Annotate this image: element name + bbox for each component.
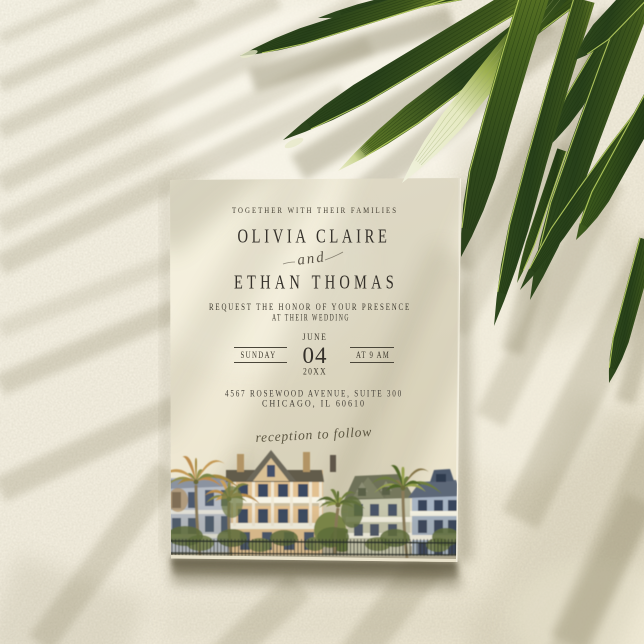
svg-text:TOGETHER WITH THEIR FAMILIES: TOGETHER WITH THEIR FAMILIES	[232, 205, 398, 215]
svg-text:20XX: 20XX	[303, 367, 327, 377]
svg-text:REQUEST THE HONOR OF YOUR PRES: REQUEST THE HONOR OF YOUR PRESENCE	[209, 302, 411, 312]
svg-text:OLIVIA CLAIRE: OLIVIA CLAIRE	[238, 226, 391, 248]
svg-text:SUNDAY: SUNDAY	[241, 350, 277, 360]
svg-text:04: 04	[303, 343, 328, 368]
svg-text:JUNE: JUNE	[303, 332, 328, 342]
svg-text:ETHAN THOMAS: ETHAN THOMAS	[234, 272, 398, 294]
svg-text:4567 ROSEWOOD AVENUE, SUITE 30: 4567 ROSEWOOD AVENUE, SUITE 300	[225, 389, 403, 399]
svg-text:AT 9 AM: AT 9 AM	[356, 350, 390, 360]
svg-text:AT THEIR WEDDING: AT THEIR WEDDING	[272, 313, 350, 323]
svg-text:CHICAGO, IL 60610: CHICAGO, IL 60610	[262, 399, 366, 409]
